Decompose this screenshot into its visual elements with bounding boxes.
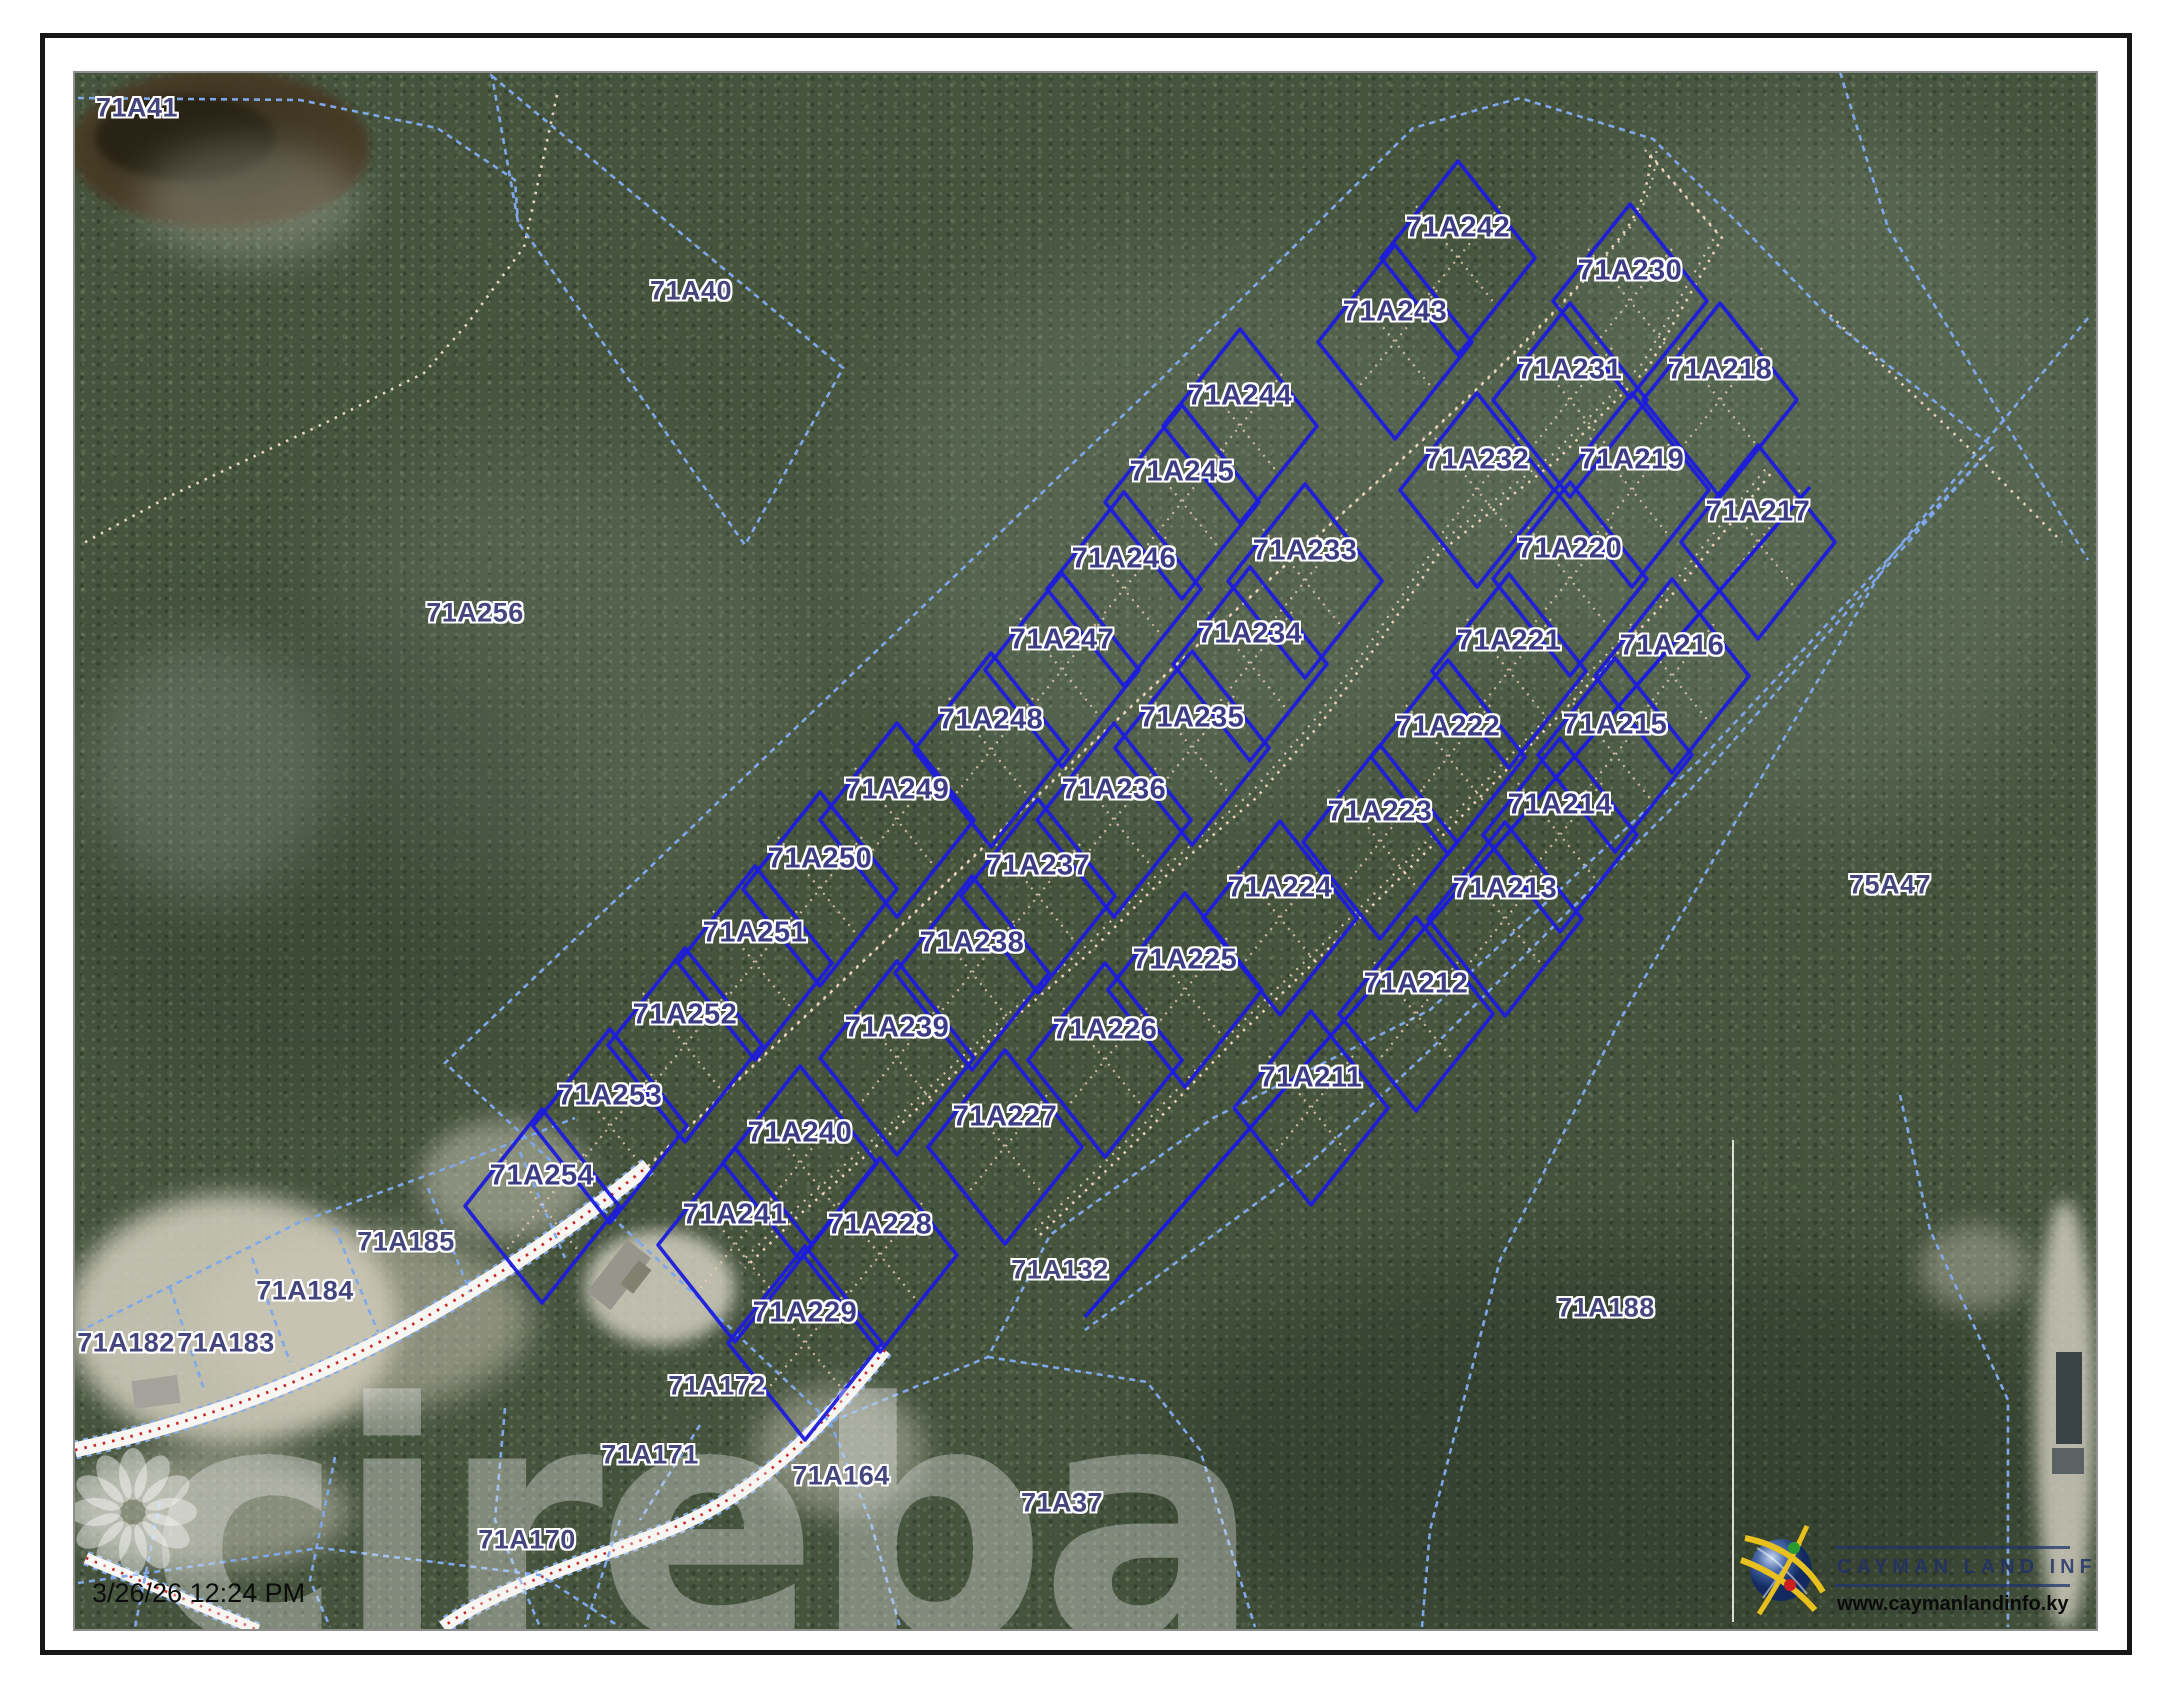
parcel-label: 71A226 [1053,1014,1158,1047]
parcel-label: 71A170 [478,1525,576,1556]
parcel-label: 71A183 [177,1328,275,1359]
parcel-label: 71A227 [953,1101,1058,1134]
logo-title: CAYMAN LAND INFO [1837,1556,2098,1579]
parcel-label: 71A164 [792,1461,890,1492]
parcel-label: 71A234 [1198,618,1303,651]
parcel-label: 71A241 [683,1199,788,1232]
parcel-label: 71A132 [1011,1255,1109,1286]
parcel-label: 71A238 [920,927,1025,960]
parcel-label: 71A223 [1328,796,1433,829]
parcel-label: 71A171 [601,1440,699,1471]
parcel-label: 71A242 [1406,212,1511,245]
parcel-label: 71A232 [1425,444,1530,477]
logo-rule-bottom [1835,1584,2070,1587]
logo-website: www.caymanlandinfo.ky [1837,1593,2069,1616]
parcel-label: 71A220 [1518,533,1623,566]
parcel-label: 71A254 [490,1160,595,1193]
parcel-label: 71A215 [1563,709,1668,742]
parcel-label: 71A225 [1133,944,1238,977]
parcel-label: 71A240 [748,1117,853,1150]
parcel-label: 71A249 [845,774,950,807]
parcel-label: 71A211 [1260,1062,1363,1095]
parcel-label: 71A243 [1343,296,1448,329]
parcel-label: 71A228 [828,1209,933,1242]
parcel-label: 71A41 [96,93,178,124]
parcel-label: 71A235 [1140,702,1245,735]
parcel-label: 71A252 [633,999,738,1032]
parcel-label: 71A244 [1188,380,1293,413]
parcel-label: 71A222 [1396,711,1501,744]
map-report-page: cireba 71A24271A24371A24471A24571A24671A… [0,0,2168,1700]
parcel-label: 71A247 [1010,624,1115,657]
parcel-label: 71A37 [1021,1488,1103,1519]
parcel-label: 71A251 [703,917,808,950]
parcel-label: 71A184 [256,1276,354,1307]
parcel-label: 71A253 [558,1080,663,1113]
parcel-label: 71A246 [1072,543,1177,576]
cayman-land-info-logo: CAYMAN LAND INFO www.caymanlandinfo.ky [1737,1518,2082,1623]
parcel-label: 71A188 [1557,1293,1655,1324]
parcel-label: 71A182 [77,1328,175,1359]
parcel-label: 71A256 [426,598,524,629]
parcel-label: 71A218 [1668,354,1773,387]
parcel-label: 71A231 [1518,354,1623,387]
parcel-label: 71A185 [357,1227,455,1258]
map-viewport: cireba 71A24271A24371A24471A24571A24671A… [73,71,2098,1631]
parcel-label: 75A47 [1849,870,1931,901]
parcel-label: 71A219 [1580,444,1685,477]
parcel-label: 71A216 [1620,630,1725,663]
parcel-label: 71A233 [1253,535,1358,568]
parcel-label: 71A40 [650,276,732,307]
map-canvas: cireba 71A24271A24371A24471A24571A24671A… [73,71,2098,1631]
parcel-label: 71A212 [1364,968,1469,1001]
parcel-label: 71A214 [1508,789,1613,822]
parcel-label: 71A230 [1578,255,1683,288]
parcel-label: 71A221 [1457,625,1562,658]
parcel-label: 71A245 [1130,456,1235,489]
parcel-label: 71A213 [1453,873,1558,906]
parcel-label: 71A217 [1706,496,1811,529]
parcel-label: 71A172 [668,1371,766,1402]
parcel-label: 71A248 [939,704,1044,737]
globe-arcs-icon [1737,1518,1832,1623]
parcel-label: 71A250 [768,843,873,876]
print-timestamp: 3/26/26 12:24 PM [92,1578,305,1609]
logo-rule-top [1835,1546,2070,1549]
parcel-label: 71A229 [753,1297,858,1330]
parcel-label: 71A237 [986,850,1091,883]
parcel-label: 71A236 [1062,774,1167,807]
parcel-label: 71A239 [845,1012,950,1045]
parcel-label: 71A224 [1228,872,1333,905]
